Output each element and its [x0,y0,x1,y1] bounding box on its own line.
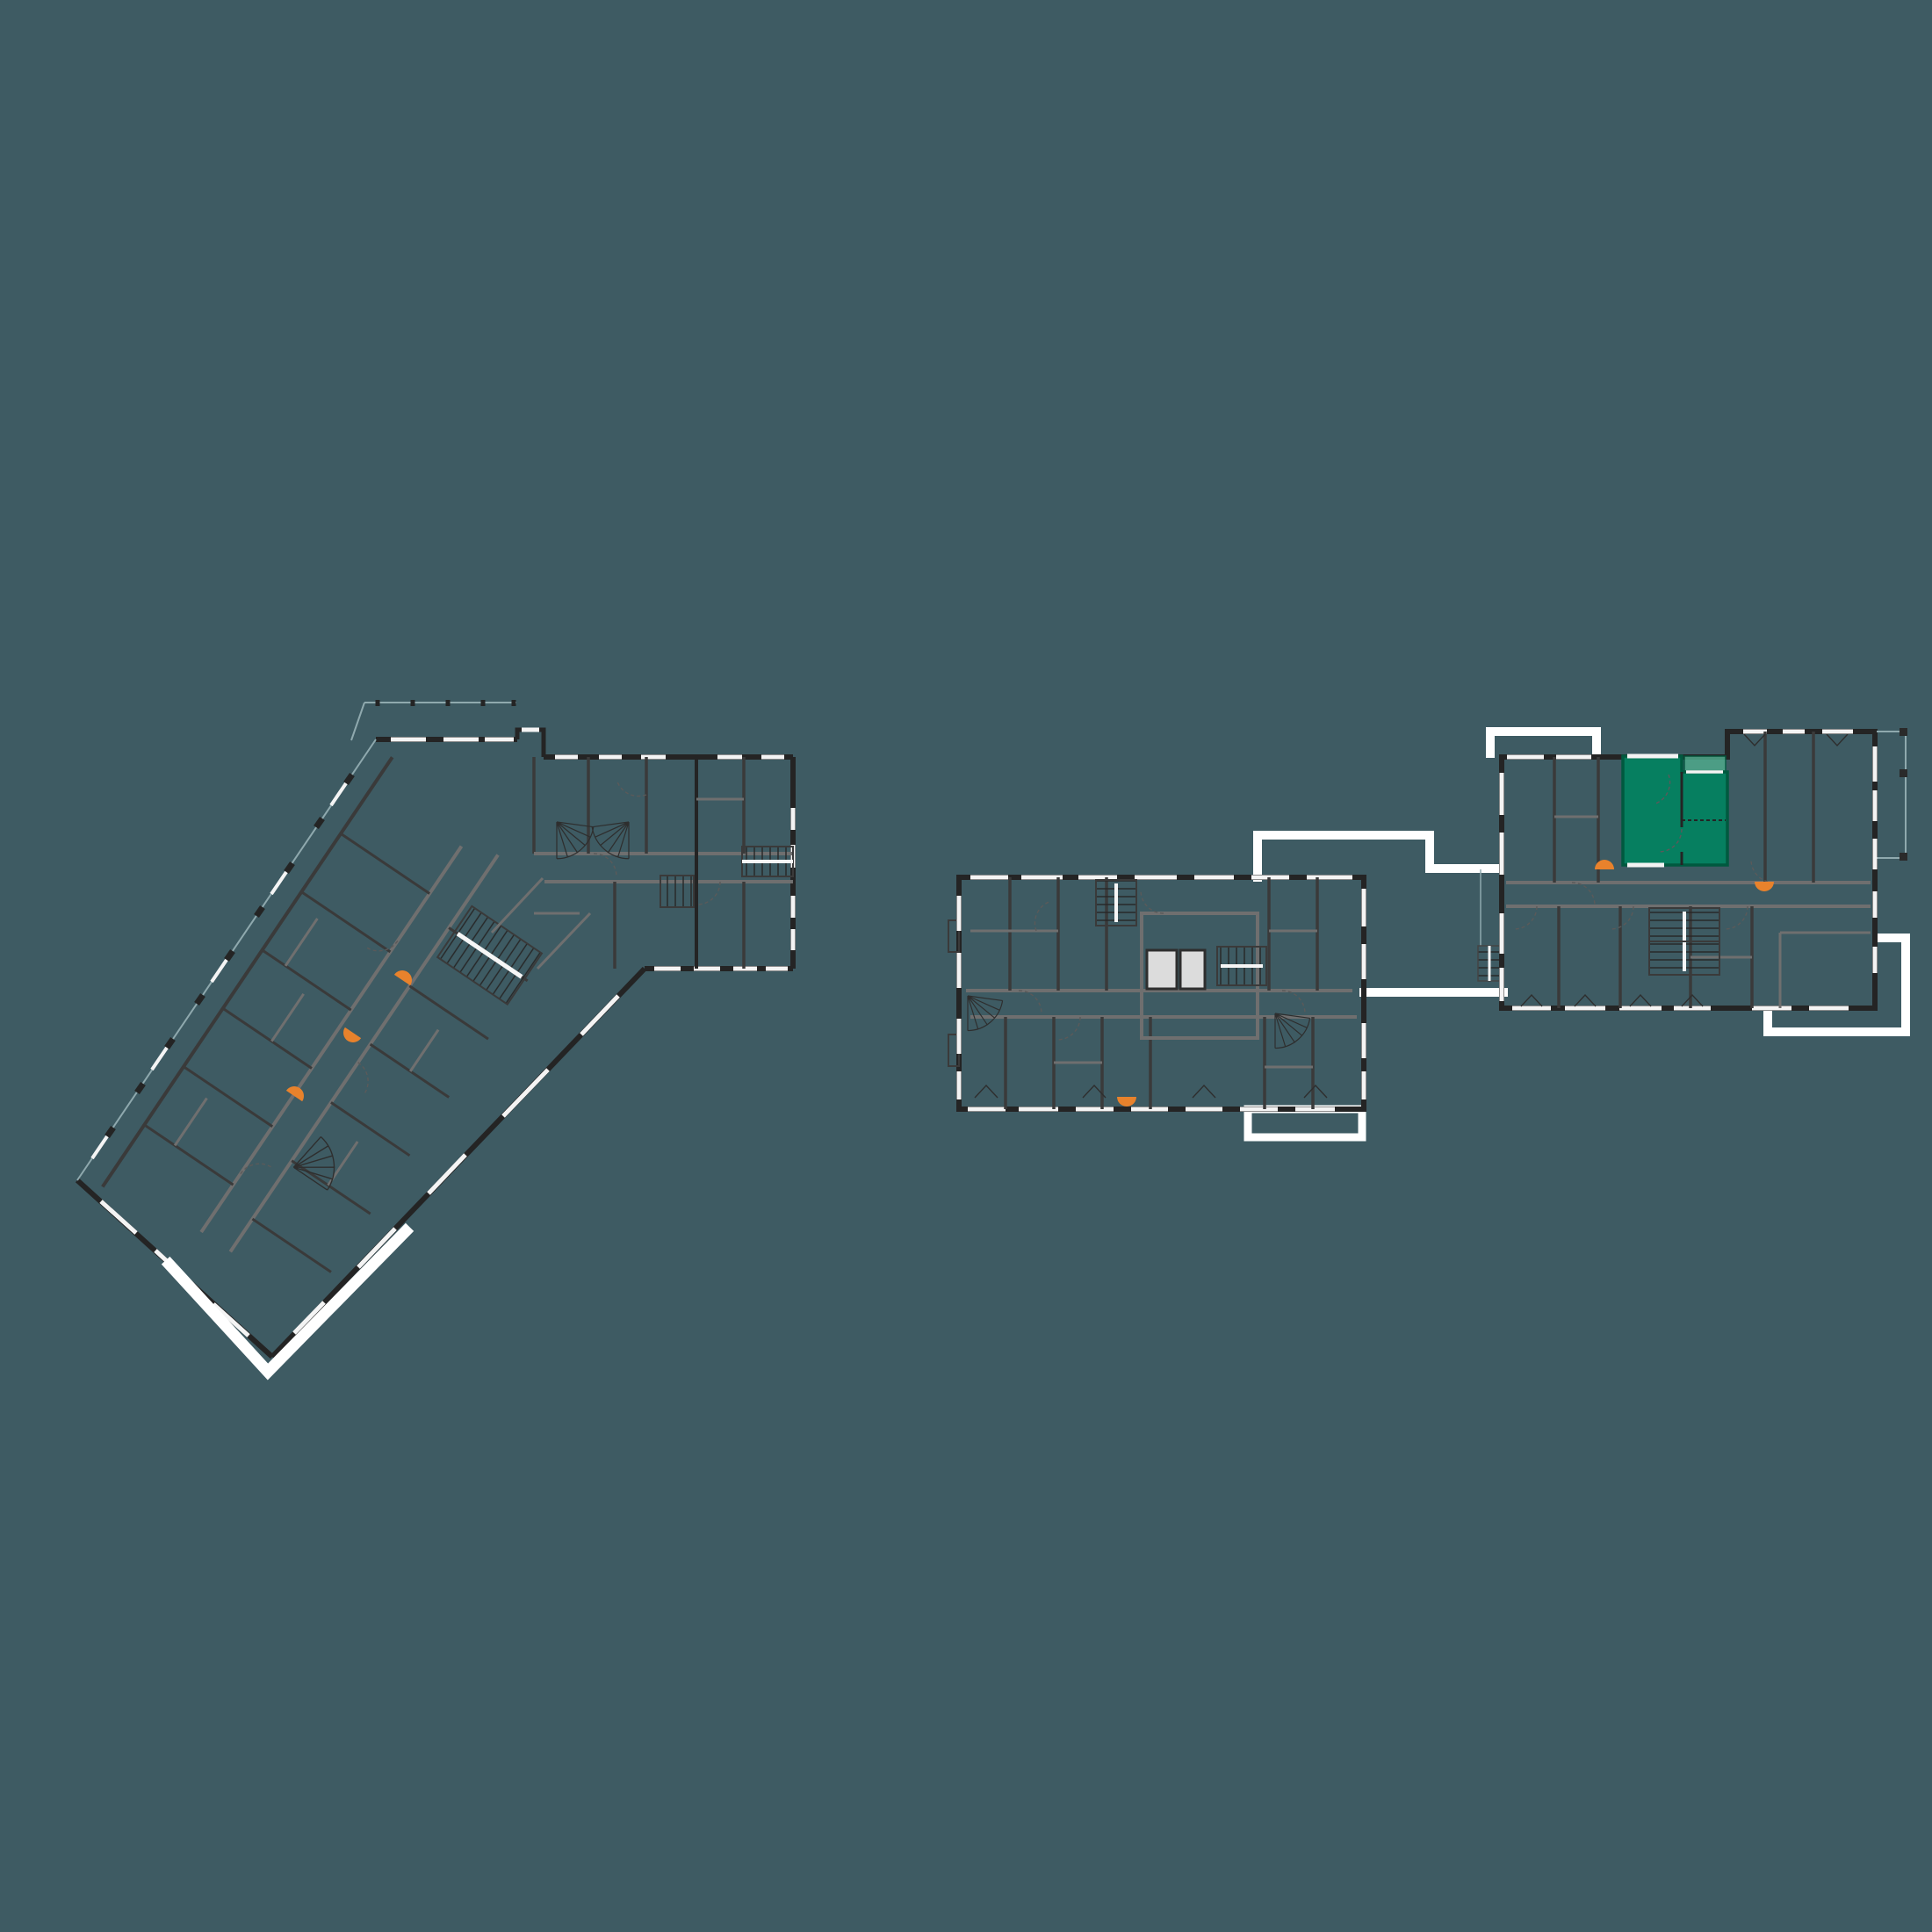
highlighted-unit-balcony [1684,756,1726,772]
floor-plans-page [0,0,1932,1932]
exterior-walls [77,700,793,1357]
stair-elevator-core [1096,880,1266,1038]
entry-marker-icon [1117,1097,1136,1107]
elevator-icon [1147,950,1177,989]
elevator-icon [1180,950,1205,989]
terrace-outline [1248,1109,1362,1137]
floor-plan-right[interactable] [1490,728,1907,1032]
stairwell [1649,908,1719,975]
pergola-line [351,703,516,740]
windows [92,730,793,1336]
entry-markers [286,967,415,1101]
terrace-outline [1768,938,1906,1032]
glass-balcony [1877,728,1907,861]
entry-marker-icon [1755,882,1774,891]
highlighted-unit[interactable] [1623,756,1727,865]
entry-marker-icon [340,1027,361,1046]
connector-stairs [1478,869,1501,981]
terrace-outline [1258,835,1496,877]
floor-plan-middle[interactable] [948,835,1503,1137]
winder-stairs-icon [968,996,1003,1031]
right-wing-interior [492,757,793,969]
stairs-icon [660,876,694,907]
terrace-outline [1490,732,1597,753]
floor-plans-canvas [0,0,1932,1932]
floor-plan-left[interactable] [77,700,793,1372]
